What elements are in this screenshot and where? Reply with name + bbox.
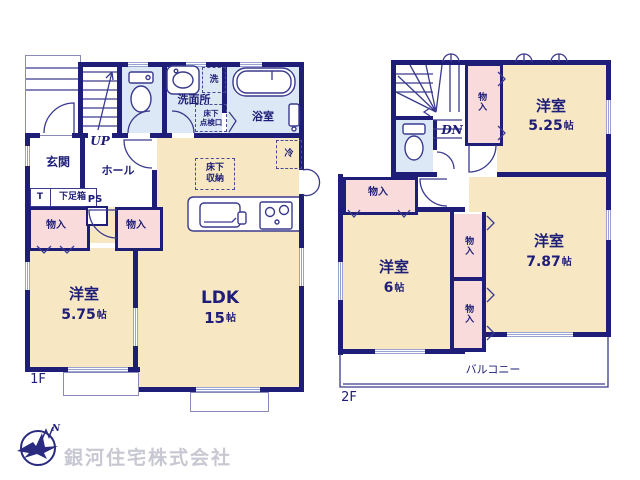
f1-hall-label: ホール [96,164,140,178]
f1-ldk-size: 15帖 [196,310,244,328]
f1-floor-label: 1F [26,373,50,388]
f2-room525-size: 5.25帖 [519,118,583,135]
f2-room787-name: 洋室 [523,233,575,251]
f1-closet-markers [37,246,74,253]
f2-closet-lower-label: 物入 [455,292,481,336]
f2-dn-label: DN [438,124,466,138]
f1-toilet-icon [129,72,153,112]
f1-ldk-name: LDK [196,289,244,309]
f1-bathroom-label: 浴室 [248,110,278,124]
f1-porch-steps [26,68,78,133]
f2-room6-size: 6帖 [372,280,416,297]
f1-entrance-label: 玄関 [36,155,80,171]
compass-north-label: N [50,424,62,434]
f1-basin-icon [167,66,199,94]
f2-door-arcs [420,145,496,206]
f2-closet-top-label: 物入 [468,78,494,126]
f1-closet-left-label: 物入 [36,219,76,232]
f1-stairs [83,72,117,130]
company-name: 銀河住宅株式会社 [64,443,232,470]
f1-ps-label: PS [84,194,106,205]
f2-room6-name: 洋室 [368,259,420,277]
f2-closet-upper-label: 物入 [455,224,481,268]
f1-t-label: T [32,191,48,203]
f2-balcony-outline [340,337,608,387]
f1-washroom-label: 洗面所 [174,93,214,107]
f2-floor-label: 2F [336,391,362,406]
f2-balcony-label: バルコニー [448,363,538,377]
f1-up-label: UP [86,135,114,149]
f1-closet-right-label: 物入 [116,219,156,232]
f1-kitchen-counter [188,197,299,231]
f1-western-name: 洋室 [58,286,110,304]
f1-western-size: 5.75帖 [52,307,116,324]
floor-plan-canvas: 洗 床下点検口 冷 床下収納 [0,0,640,480]
f2-room787-size: 7.87帖 [517,254,581,271]
f2-room525-name: 洋室 [525,98,577,116]
f2-closet-hall-label: 物入 [358,186,398,199]
f2-casement-windows [443,54,567,62]
